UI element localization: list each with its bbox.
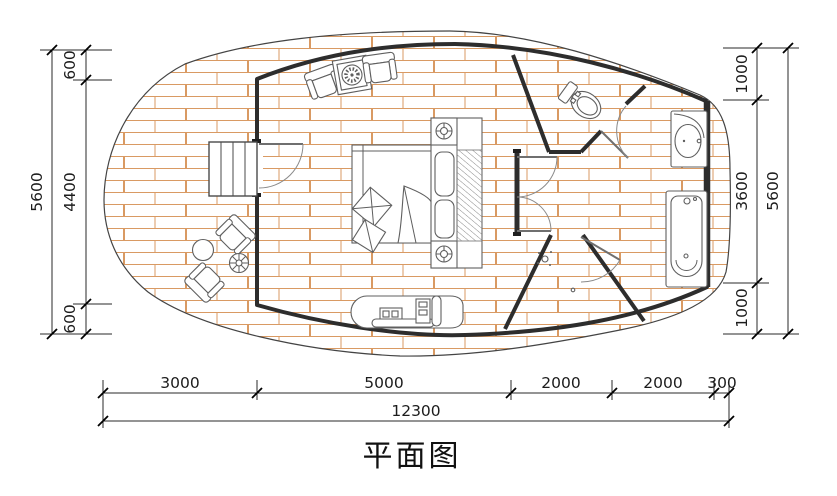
closet-unit xyxy=(431,118,482,268)
lamp-icon xyxy=(436,123,452,139)
wardrobe-hanging-hatch xyxy=(457,150,482,241)
floor-plan-page: 600 4400 600 5600 1000 3600 1000 5600 30… xyxy=(0,0,837,496)
dim-bottom-segment-2: 2000 xyxy=(541,374,580,392)
dim-bottom-overall: 12300 xyxy=(391,402,440,420)
armchair xyxy=(362,52,398,84)
bed xyxy=(352,145,432,253)
dim-left: 600 4400 600 5600 xyxy=(28,45,112,339)
dim-bottom-segment-4: 300 xyxy=(707,374,737,392)
deck-side-table xyxy=(230,254,249,273)
dim-bottom-segment-3: 2000 xyxy=(643,374,682,392)
washbasin xyxy=(671,111,707,167)
lamp-icon xyxy=(436,246,452,262)
door-jamb xyxy=(513,232,521,236)
dim-bottom: 3000 5000 2000 2000 300 12300 xyxy=(98,374,737,428)
dim-right: 1000 3600 1000 5600 xyxy=(723,43,799,339)
dim-right-segment-0: 1000 xyxy=(733,54,751,93)
bathtub xyxy=(666,191,707,287)
dim-left-segment-0: 600 xyxy=(61,50,79,80)
floor-drain-icon xyxy=(571,288,575,292)
dim-left-segment-1: 4400 xyxy=(61,172,79,211)
faucet-icon xyxy=(684,198,690,204)
door-jamb xyxy=(513,149,521,153)
dim-right-segment-2: 1000 xyxy=(733,288,751,327)
chaise-lounge xyxy=(351,296,463,328)
drain-icon xyxy=(684,254,688,258)
entrance-steps xyxy=(209,142,257,196)
deck-round-table xyxy=(193,240,214,261)
dim-right-overall: 5600 xyxy=(764,171,782,210)
plan-title: 平面图 xyxy=(363,439,462,474)
dim-bottom-segment-0: 3000 xyxy=(160,374,199,392)
dim-left-segment-2: 600 xyxy=(61,304,79,334)
dim-left-overall: 5600 xyxy=(28,172,46,211)
dim-bottom-segment-1: 5000 xyxy=(364,374,403,392)
dim-right-segment-1: 3600 xyxy=(733,171,751,210)
floor-plan-canvas: 600 4400 600 5600 1000 3600 1000 5600 30… xyxy=(0,0,837,496)
